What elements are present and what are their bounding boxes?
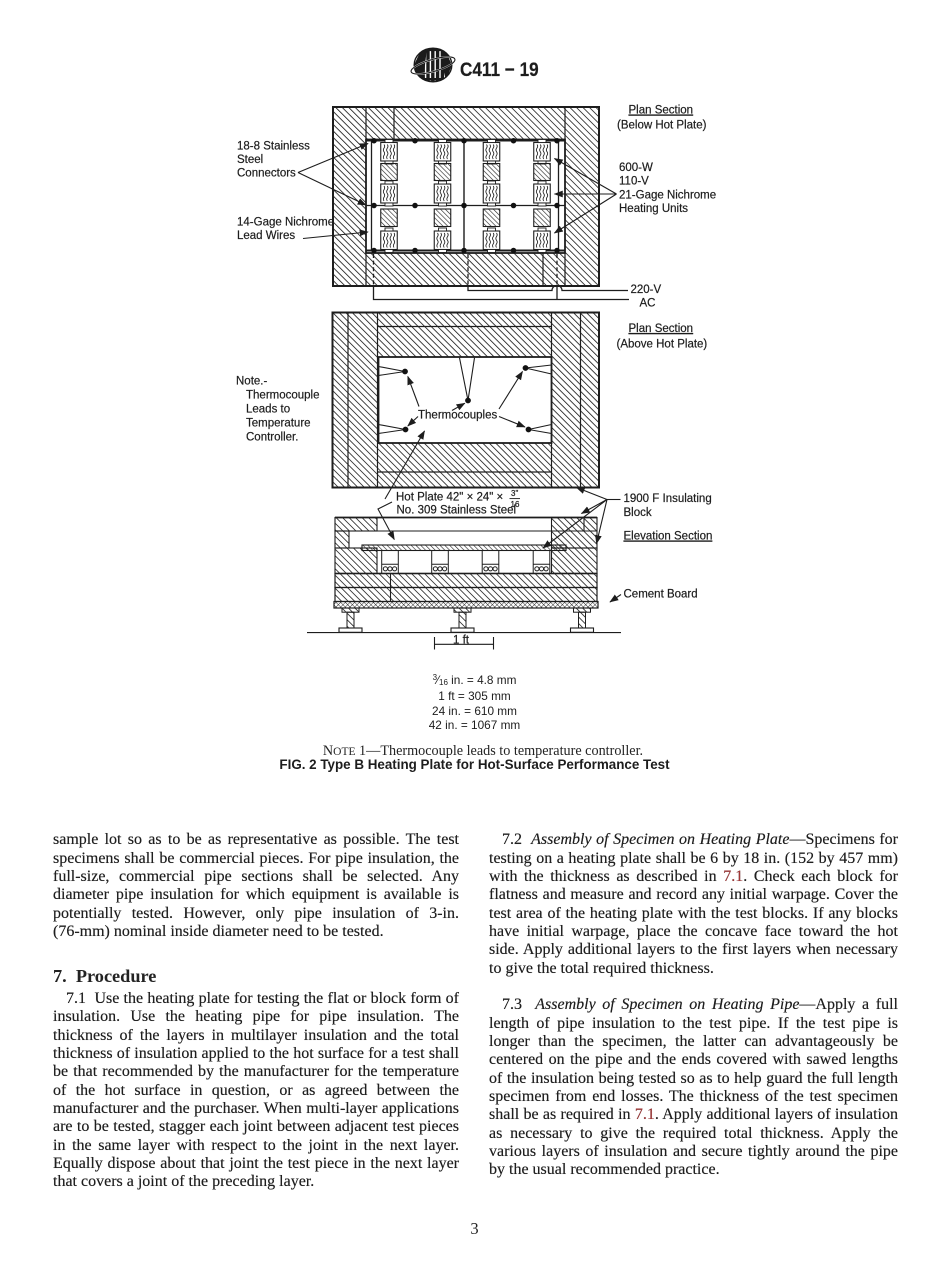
svg-text:No. 309 Stainless Steel: No. 309 Stainless Steel [397, 505, 517, 517]
svg-text:Heating Units: Heating Units [619, 203, 688, 215]
svg-text:Plan Section: Plan Section [629, 323, 694, 335]
svg-text:1 ft: 1 ft [453, 635, 470, 647]
svg-text:3": 3" [511, 489, 518, 498]
svg-text:Steel: Steel [237, 154, 263, 166]
svg-text:220-V: 220-V [631, 284, 662, 296]
svg-text:AC: AC [640, 298, 656, 310]
svg-text:1900 F Insulating: 1900 F Insulating [624, 493, 712, 505]
svg-text:Connectors: Connectors [237, 168, 296, 180]
svg-text:Thermocouple: Thermocouple [246, 390, 320, 402]
svg-text:Note.-: Note.- [236, 376, 267, 388]
svg-text:14-Gage Nichrome: 14-Gage Nichrome [237, 217, 334, 229]
svg-text:Leads to: Leads to [246, 404, 290, 416]
svg-text:Temperature: Temperature [246, 418, 311, 430]
svg-text:C411 − 19: C411 − 19 [460, 58, 539, 80]
svg-text:Plan Section: Plan Section [629, 105, 694, 117]
svg-text:Hot Plate 42" × 24" ×: Hot Plate 42" × 24" × [396, 492, 503, 504]
svg-text:Cement Board: Cement Board [624, 589, 698, 601]
svg-text:Lead Wires: Lead Wires [237, 230, 295, 242]
svg-text:18-8 Stainless: 18-8 Stainless [237, 141, 310, 153]
svg-text:Elevation Section: Elevation Section [624, 531, 713, 543]
svg-text:Controller.: Controller. [246, 432, 298, 444]
svg-text:21-Gage Nichrome: 21-Gage Nichrome [619, 190, 716, 202]
svg-text:110-V: 110-V [619, 176, 649, 188]
svg-text:Block: Block [624, 507, 652, 519]
svg-text:(Below Hot Plate): (Below Hot Plate) [617, 120, 707, 132]
svg-text:Thermocouples: Thermocouples [418, 410, 498, 422]
svg-text:600-W: 600-W [619, 162, 653, 174]
svg-text:(Above Hot Plate): (Above Hot Plate) [617, 339, 708, 351]
